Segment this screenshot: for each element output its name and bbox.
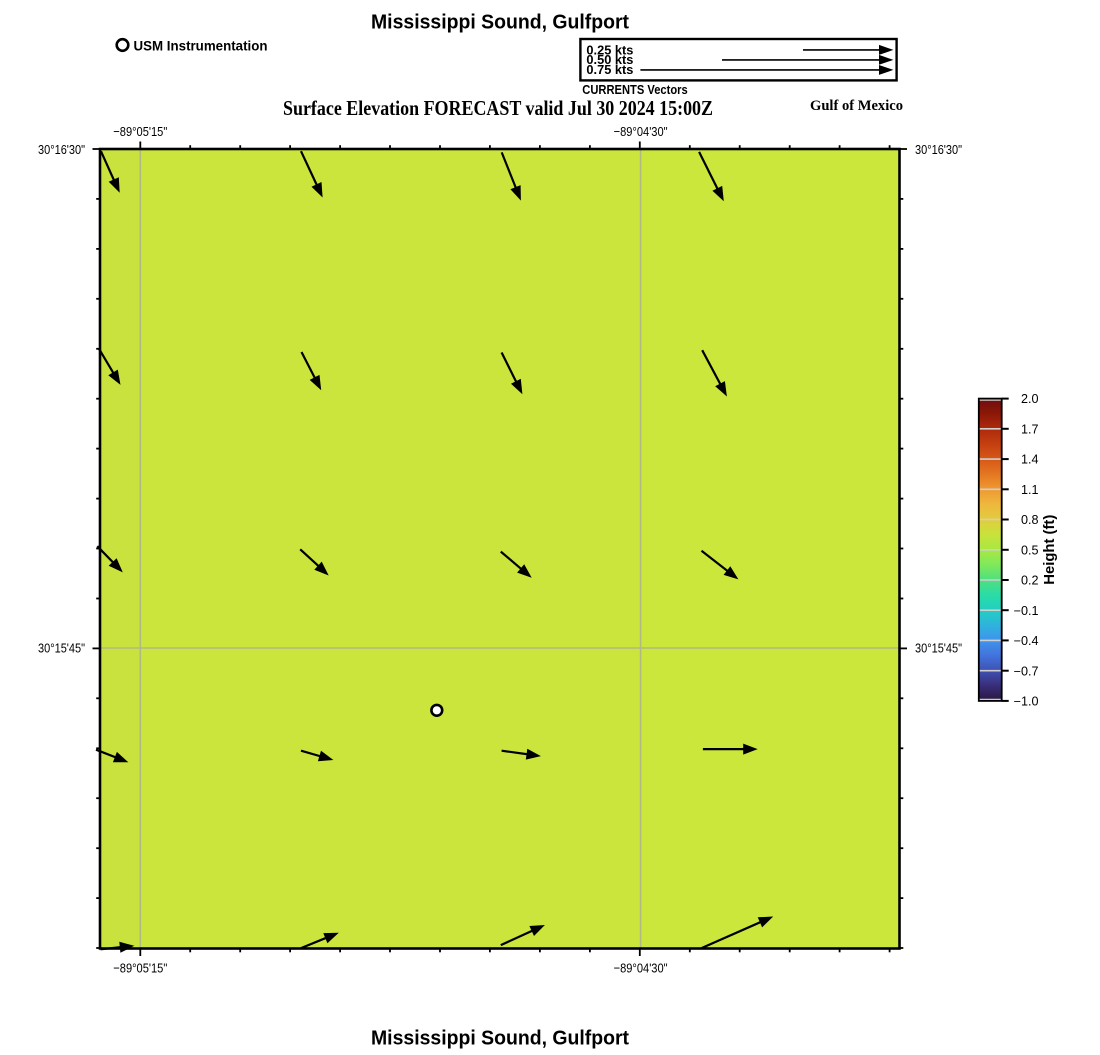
svg-text:Mississippi Sound, Gulfport: Mississippi Sound, Gulfport <box>371 1028 629 1050</box>
svg-text:0.8: 0.8 <box>1021 513 1039 527</box>
svg-text:−0.4: −0.4 <box>1014 634 1039 648</box>
svg-text:USM Instrumentation: USM Instrumentation <box>134 39 268 54</box>
svg-text:−0.7: −0.7 <box>1014 664 1039 678</box>
svg-text:30°15'45": 30°15'45" <box>38 641 85 656</box>
svg-text:0.2: 0.2 <box>1021 574 1039 588</box>
svg-text:−1.0: −1.0 <box>1014 695 1039 709</box>
svg-text:Gulf of Mexico: Gulf of Mexico <box>810 98 903 114</box>
svg-text:30°15'45": 30°15'45" <box>915 641 962 656</box>
svg-text:30°16'30": 30°16'30" <box>38 142 85 157</box>
svg-text:1.4: 1.4 <box>1021 453 1039 467</box>
svg-text:−89°05'15": −89°05'15" <box>113 124 167 139</box>
svg-text:Height (ft): Height (ft) <box>1042 515 1058 585</box>
svg-text:1.7: 1.7 <box>1021 422 1039 436</box>
svg-text:−89°04'30": −89°04'30" <box>614 961 668 976</box>
svg-text:1.1: 1.1 <box>1021 483 1039 497</box>
svg-text:CURRENTS Vectors: CURRENTS Vectors <box>582 83 687 97</box>
svg-text:30°16'30": 30°16'30" <box>915 142 962 157</box>
svg-text:−0.1: −0.1 <box>1014 604 1039 618</box>
svg-text:2.0: 2.0 <box>1021 392 1039 406</box>
svg-text:Surface Elevation FORECAST val: Surface Elevation FORECAST valid Jul 30 … <box>283 96 713 120</box>
svg-text:0.5: 0.5 <box>1021 543 1039 557</box>
svg-text:−89°05'15": −89°05'15" <box>113 961 167 976</box>
svg-text:0.75 kts: 0.75 kts <box>586 63 633 77</box>
svg-text:Mississippi Sound, Gulfport: Mississippi Sound, Gulfport <box>371 12 629 34</box>
svg-text:−89°04'30": −89°04'30" <box>614 124 668 139</box>
